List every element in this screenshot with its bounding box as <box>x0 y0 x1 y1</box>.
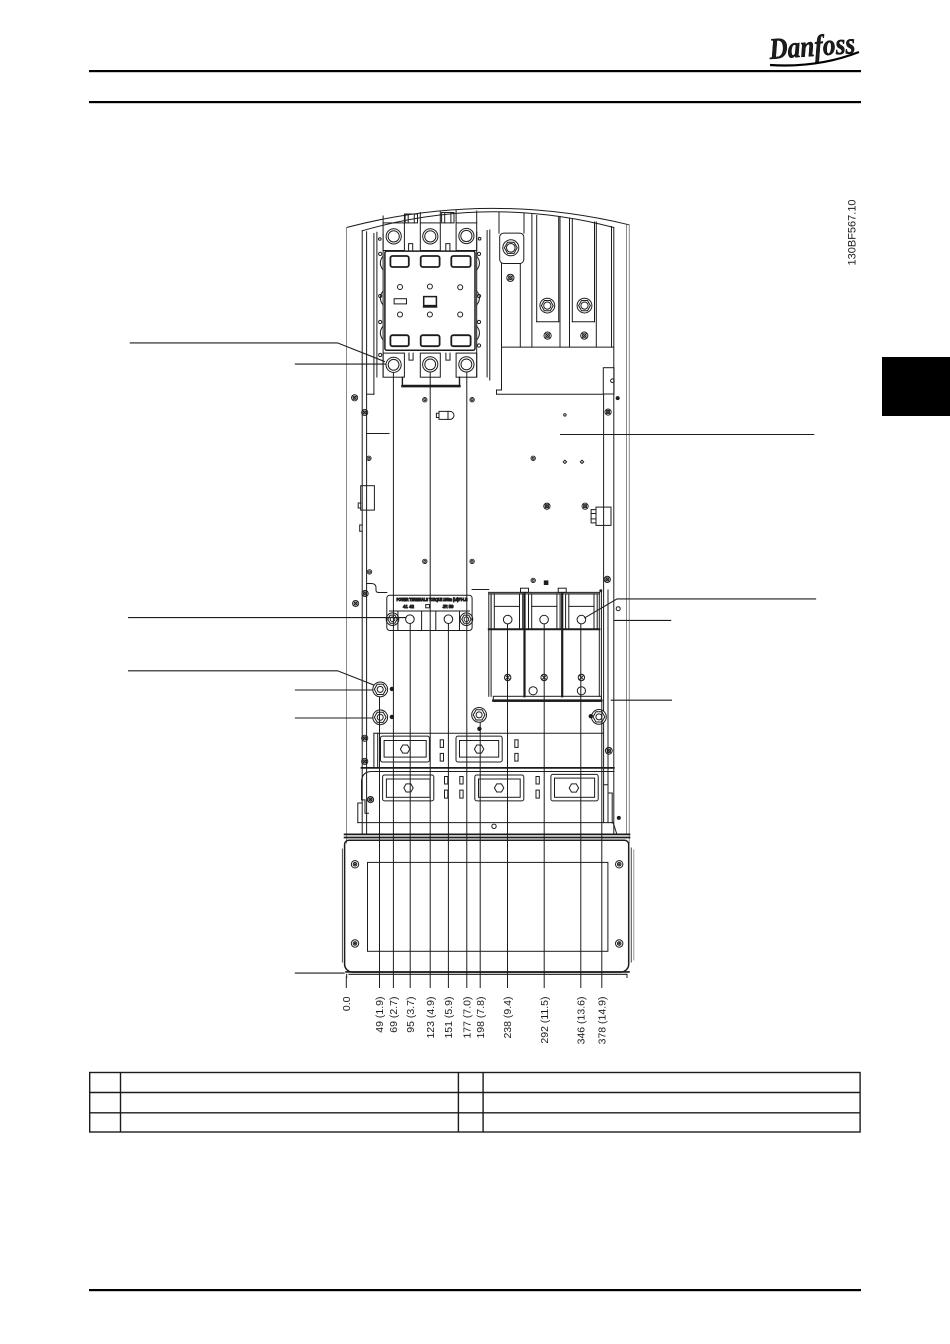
svg-text:JR 59: JR 59 <box>443 604 455 609</box>
svg-text:198 (7.8): 198 (7.8) <box>475 997 487 1039</box>
svg-text:292 (11.5): 292 (11.5) <box>539 997 551 1044</box>
svg-text:123 (4.9): 123 (4.9) <box>425 997 437 1039</box>
svg-text:69 (2.7): 69 (2.7) <box>388 997 400 1033</box>
svg-text:151 (5.9): 151 (5.9) <box>443 997 455 1039</box>
svg-text:0.0: 0.0 <box>341 996 353 1011</box>
svg-text:346 (13.6): 346 (13.6) <box>576 997 588 1045</box>
svg-text:238 (9.4): 238 (9.4) <box>502 997 514 1039</box>
svg-text:95 (3.7): 95 (3.7) <box>405 997 417 1033</box>
svg-text:177 (7.0): 177 (7.0) <box>462 997 474 1039</box>
svg-text:POWER TERMINALS TORQUE 19Nm (1: POWER TERMINALS TORQUE 19Nm (14)FT-LB <box>397 597 468 602</box>
svg-text:49 (1.9): 49 (1.9) <box>374 997 386 1033</box>
svg-text:Danfoss: Danfoss <box>767 27 856 66</box>
svg-text:378 (14.9): 378 (14.9) <box>597 997 609 1045</box>
svg-text:130BF567.10: 130BF567.10 <box>847 199 859 265</box>
svg-text:41 42: 41 42 <box>403 604 415 609</box>
